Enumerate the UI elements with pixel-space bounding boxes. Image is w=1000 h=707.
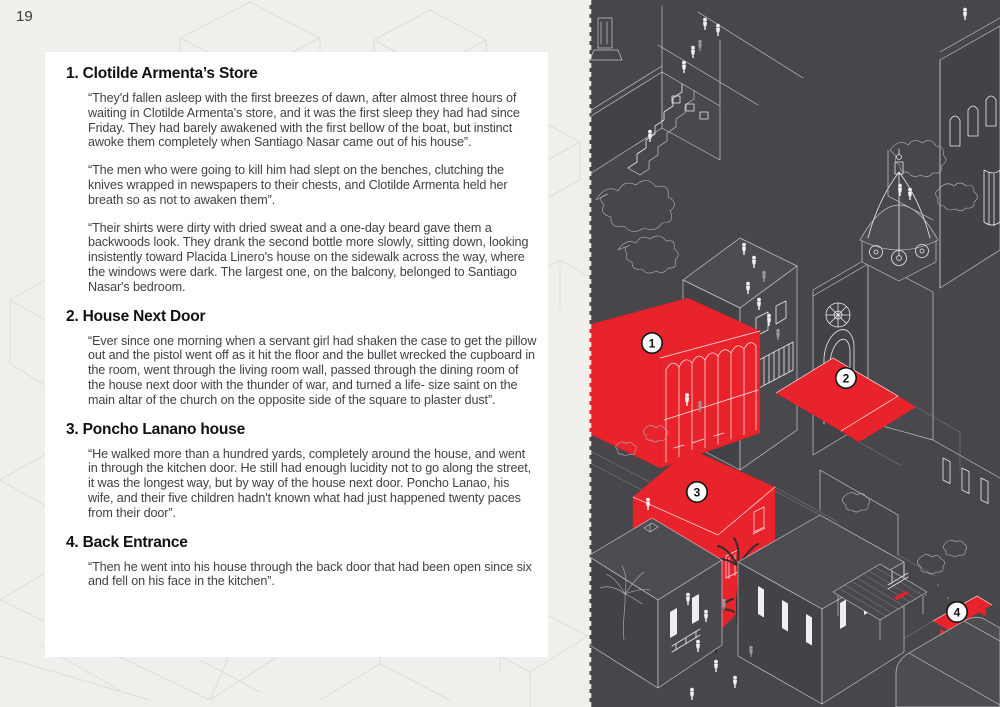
section-poncho-lanano-house: 3. Poncho Lanano house “He walked more t… bbox=[45, 421, 548, 521]
quote-paragraph: “He walked more than a hundred yards, co… bbox=[88, 447, 538, 521]
map-marker-2-label: 2 bbox=[843, 371, 850, 385]
section-title-text: Back Entrance bbox=[83, 534, 188, 551]
left-page: 19 1. Clotilde Armenta’s Store “They'd f… bbox=[0, 0, 588, 707]
section-number: 1. bbox=[66, 65, 79, 82]
right-page: 1 2 3 4 bbox=[588, 0, 1000, 707]
section-title-text: Clotilde Armenta’s Store bbox=[83, 65, 258, 82]
section-title: 1. Clotilde Armenta’s Store bbox=[66, 65, 538, 83]
section-number: 4. bbox=[66, 534, 79, 551]
page-number: 19 bbox=[16, 8, 33, 25]
map-marker-1-label: 1 bbox=[649, 336, 656, 350]
text-panel: 1. Clotilde Armenta’s Store “They'd fall… bbox=[45, 52, 548, 657]
quote-paragraph: “Their shirts were dirty with dried swea… bbox=[88, 221, 538, 295]
quote-paragraph: “Then he went into his house through the… bbox=[88, 560, 538, 590]
section-number: 2. bbox=[66, 308, 79, 325]
section-title: 3. Poncho Lanano house bbox=[66, 421, 538, 439]
section-number: 3. bbox=[66, 421, 79, 438]
quote-paragraph: “The men who were going to kill him had … bbox=[88, 163, 538, 207]
section-back-entrance: 4. Back Entrance “Then he went into his … bbox=[45, 534, 548, 590]
map-marker-4: 4 bbox=[947, 602, 967, 622]
section-house-next-door: 2. House Next Door “Ever since one morni… bbox=[45, 308, 548, 408]
map-marker-3: 3 bbox=[687, 482, 707, 502]
isometric-town-map: 1 2 3 4 bbox=[588, 0, 1000, 707]
map-marker-1: 1 bbox=[642, 333, 662, 353]
map-marker-3-label: 3 bbox=[694, 485, 701, 499]
quote-paragraph: “Ever since one morning when a servant g… bbox=[88, 334, 538, 408]
section-title: 4. Back Entrance bbox=[66, 534, 538, 552]
map-marker-2: 2 bbox=[836, 368, 856, 388]
section-title-text: Poncho Lanano house bbox=[83, 421, 245, 438]
section-title: 2. House Next Door bbox=[66, 308, 538, 326]
section-title-text: House Next Door bbox=[83, 308, 206, 325]
map-marker-4-label: 4 bbox=[954, 605, 961, 619]
quote-paragraph: “They'd fallen asleep with the first bre… bbox=[88, 91, 538, 150]
book-spread: 19 1. Clotilde Armenta’s Store “They'd f… bbox=[0, 0, 1000, 707]
section-clotilde-armentas-store: 1. Clotilde Armenta’s Store “They'd fall… bbox=[45, 65, 548, 295]
